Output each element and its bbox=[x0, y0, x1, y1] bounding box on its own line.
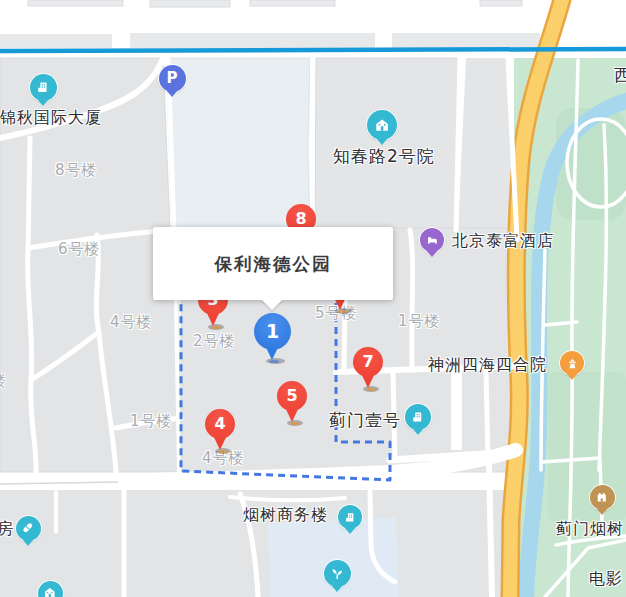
map-canvas[interactable]: 8号楼6号楼4号楼楼1号楼2号楼5号楼1号楼4号楼西电影 P锦秋国际大厦知春路2… bbox=[0, 0, 626, 597]
popup-title: 保利海德公园 bbox=[153, 227, 393, 300]
pin-head: 5 bbox=[277, 381, 307, 411]
pin-head: 4 bbox=[205, 409, 235, 439]
pin-number: 5 bbox=[286, 388, 297, 404]
pin-head: 1 bbox=[254, 313, 291, 350]
place-popup[interactable]: 保利海德公园 bbox=[153, 227, 393, 300]
pin-number: 4 bbox=[214, 416, 225, 432]
pin-head: 7 bbox=[353, 347, 383, 377]
pin-number: 8 bbox=[295, 211, 306, 227]
pin-number: 1 bbox=[266, 322, 279, 341]
popup-pointer-icon bbox=[261, 299, 283, 310]
pin-number: 7 bbox=[362, 354, 373, 370]
